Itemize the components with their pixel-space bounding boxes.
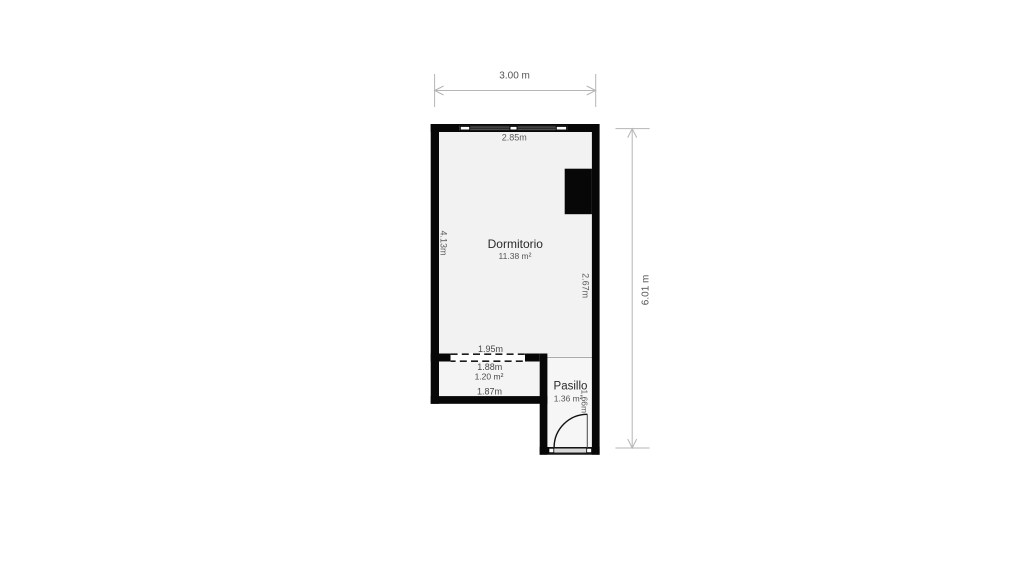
svg-text:11.38 m²: 11.38 m² [499, 251, 532, 261]
svg-text:1.66m: 1.66m [580, 389, 590, 413]
svg-text:Dormitorio: Dormitorio [488, 237, 544, 251]
svg-text:3.00 m: 3.00 m [499, 70, 530, 81]
svg-text:1.87m: 1.87m [477, 386, 502, 396]
svg-text:1.95m: 1.95m [478, 344, 503, 354]
svg-text:1.88m: 1.88m [477, 362, 502, 372]
svg-text:2.67m: 2.67m [581, 273, 591, 298]
svg-text:2.85m: 2.85m [502, 133, 527, 143]
svg-text:6.01 m: 6.01 m [640, 275, 651, 306]
svg-text:1.36 m²: 1.36 m² [554, 393, 583, 403]
svg-text:4.13m: 4.13m [439, 230, 449, 255]
svg-text:1.20 m²: 1.20 m² [475, 371, 504, 381]
